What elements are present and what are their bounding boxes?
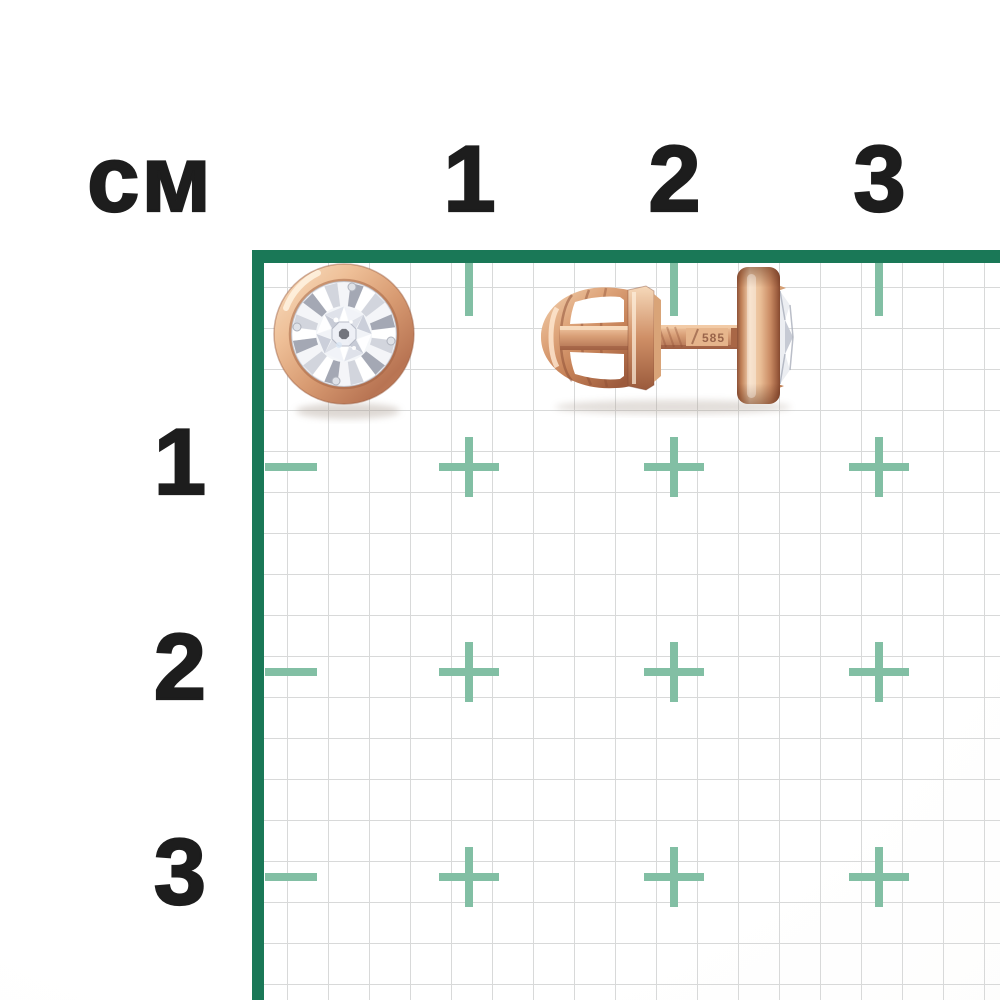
ruler-left-label-3: 3	[45, 825, 205, 919]
jewelry-size-photo: см 1 2 3 1 2 3	[0, 0, 1000, 1000]
ruler-left-label-2: 2	[45, 620, 205, 714]
bezel-side	[731, 267, 780, 404]
ear-post: 585	[655, 325, 739, 349]
screw-back-clasp	[541, 286, 661, 390]
grid-border-left	[252, 250, 264, 1000]
ruler-top-label-3: 3	[853, 132, 904, 226]
earring-side-view-photo: 585	[528, 258, 818, 418]
front-earring-shadow	[296, 403, 400, 419]
diamond-facets	[317, 307, 372, 362]
ruler-left-label-1: 1	[45, 415, 205, 509]
ruler-top-label-2: 2	[648, 132, 699, 226]
ruler-top-label-1: 1	[443, 132, 494, 226]
earring-front-view-photo	[270, 256, 420, 424]
hallmark-585-stamp: 585	[702, 331, 725, 345]
ruler-unit-label: см	[87, 132, 213, 226]
